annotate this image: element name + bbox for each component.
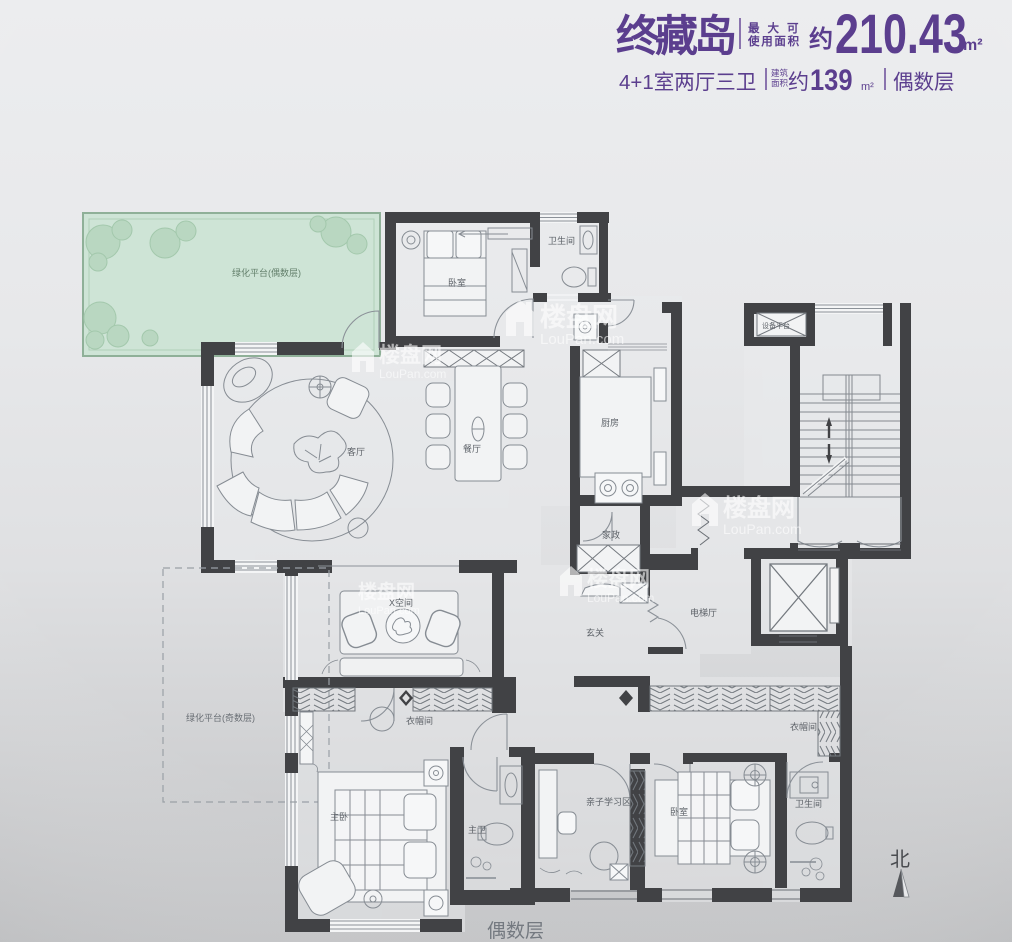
svg-text:偶数层: 偶数层 — [893, 71, 955, 94]
svg-text:楼盘网: 楼盘网 — [379, 343, 442, 367]
svg-text:衣帽间: 衣帽间 — [790, 721, 817, 732]
svg-text:面积: 面积 — [771, 78, 789, 88]
svg-text:卧室: 卧室 — [670, 806, 688, 817]
svg-text:LouPan.com: LouPan.com — [723, 521, 802, 537]
svg-text:约: 约 — [809, 25, 833, 53]
svg-text:卫生间: 卫生间 — [795, 798, 822, 809]
svg-text:最大可: 最大可 — [748, 21, 807, 35]
svg-text:楼盘网: 楼盘网 — [540, 302, 618, 332]
svg-text:m²: m² — [963, 37, 983, 54]
svg-text:玄关: 玄关 — [586, 627, 604, 638]
svg-text:电梯厅: 电梯厅 — [690, 607, 717, 618]
svg-text:LouPan.com: LouPan.com — [379, 367, 446, 381]
svg-text:绿化平台(偶数层): 绿化平台(偶数层) — [232, 267, 301, 278]
svg-text:亲子学习区: 亲子学习区 — [586, 796, 631, 807]
svg-text:餐厅: 餐厅 — [463, 443, 481, 454]
svg-text:楼盘网: 楼盘网 — [723, 494, 795, 522]
svg-text:139: 139 — [810, 63, 853, 96]
svg-text:设备平台: 设备平台 — [762, 321, 790, 330]
svg-text:210.43: 210.43 — [835, 3, 967, 66]
svg-text:约: 约 — [788, 71, 809, 94]
svg-text:4+1室两厅三卫: 4+1室两厅三卫 — [619, 71, 756, 94]
svg-text:LouPan.com: LouPan.com — [540, 331, 624, 348]
svg-text:主卫: 主卫 — [468, 824, 486, 835]
svg-text:偶数层: 偶数层 — [487, 920, 544, 942]
svg-text:建筑: 建筑 — [771, 68, 789, 78]
svg-text:家政: 家政 — [602, 529, 620, 540]
svg-text:卫生间: 卫生间 — [548, 235, 575, 246]
svg-text:绿化平台(奇数层): 绿化平台(奇数层) — [186, 712, 255, 723]
svg-text:北: 北 — [890, 848, 910, 871]
svg-text:LouPan.com: LouPan.com — [587, 591, 654, 605]
svg-text:X空间: X空间 — [389, 597, 413, 608]
svg-text:终藏岛: 终藏岛 — [616, 13, 735, 61]
svg-text:使用面积: 使用面积 — [747, 34, 801, 48]
svg-text:楼盘网: 楼盘网 — [587, 567, 650, 591]
svg-text:衣帽间: 衣帽间 — [406, 715, 433, 726]
svg-text:m²: m² — [861, 81, 874, 93]
svg-text:客厅: 客厅 — [347, 446, 365, 457]
svg-text:卧室: 卧室 — [448, 277, 466, 288]
svg-text:主卧: 主卧 — [330, 811, 348, 822]
svg-text:厨房: 厨房 — [601, 417, 619, 428]
